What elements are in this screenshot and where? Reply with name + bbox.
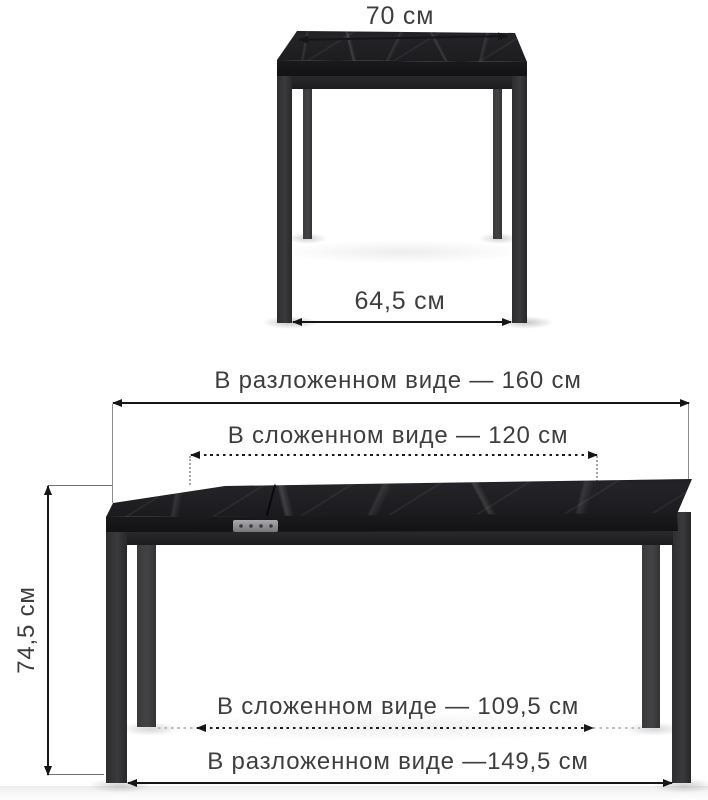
unfolded-length-arrow <box>113 402 689 404</box>
side-leg-outer-left <box>106 530 127 783</box>
folded-leg-span-label: В сложенном виде — 109,5 см <box>98 694 698 720</box>
floor-shadow <box>278 240 528 264</box>
floor-edge-shading <box>0 786 708 800</box>
folded-leg-span-stub-right <box>593 727 640 729</box>
extension-latch <box>233 520 278 532</box>
unfolded-leg-span-arrow <box>128 782 672 784</box>
height-arrow <box>47 486 49 775</box>
front-apron <box>290 76 514 89</box>
front-leg-right <box>512 76 527 323</box>
height-label: 74,5 см <box>14 571 40 689</box>
front-back-leg-right <box>493 89 502 239</box>
front-leg-left <box>277 76 292 323</box>
height-tick-top <box>48 485 112 486</box>
front-top-width-label: 70 см <box>250 3 550 29</box>
folded-length-label: В сложенном виде — 120 см <box>98 423 698 449</box>
side-tabletop-surface <box>105 477 693 519</box>
folded-length-arrow <box>191 454 597 456</box>
unfolded-length-label: В разложенном виде — 160 см <box>98 368 698 394</box>
folded-leg-span-arrow <box>197 727 593 729</box>
front-leg-span-arrow <box>293 321 511 323</box>
front-back-leg-left <box>303 89 312 239</box>
folded-drop-line-left <box>189 456 191 485</box>
product-dimensions-image: 70 см 64,5 см В разложенном виде — 160 с… <box>0 0 708 800</box>
height-tick-bottom <box>48 774 104 775</box>
side-leg-outer-right <box>672 512 691 783</box>
front-leg-span-label: 64,5 см <box>250 288 550 314</box>
folded-drop-line-right <box>596 456 598 482</box>
folded-leg-span-stub-left <box>158 727 197 729</box>
extension-line-left <box>112 404 113 503</box>
unfolded-leg-span-label: В разложенном виде —149,5 см <box>98 749 698 775</box>
side-apron <box>127 530 673 545</box>
